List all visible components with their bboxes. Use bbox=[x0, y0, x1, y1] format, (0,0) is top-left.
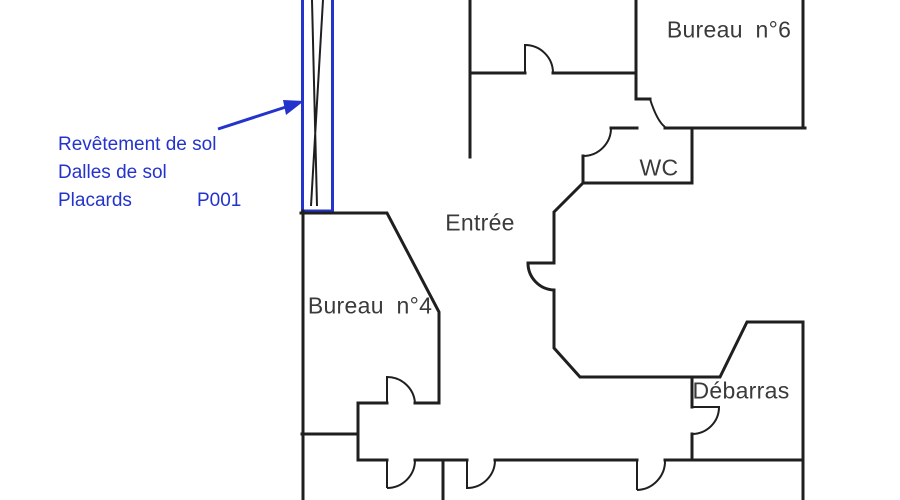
placard-highlight-strip bbox=[303, 0, 333, 211]
floor-plan: Bureau n°6 WC Entrée Bureau n°4 Débarras… bbox=[0, 0, 900, 500]
floor-plan-drawing bbox=[0, 0, 900, 500]
room-label-entree: Entrée bbox=[445, 210, 515, 237]
wall-bottom-left bbox=[358, 460, 467, 500]
annotation-text: Revêtement de sol Dalles de sol Placards… bbox=[58, 131, 216, 215]
wall-vestibule bbox=[302, 403, 358, 460]
room-label-wc: WC bbox=[640, 155, 679, 182]
door-arc-bottom-right bbox=[637, 460, 665, 490]
room-label-debarras: Débarras bbox=[693, 378, 790, 405]
room-label-bureau4: Bureau n°4 bbox=[308, 293, 432, 320]
annotation-arrow-icon bbox=[218, 100, 304, 129]
room-label-bureau6: Bureau n°6 bbox=[667, 17, 791, 44]
wall-entree-right bbox=[528, 183, 803, 500]
wall-bureau6-left bbox=[636, 0, 650, 99]
door-arc-bureau6 bbox=[650, 99, 665, 127]
door-arc-vestibule bbox=[387, 460, 415, 488]
door-arc-bureau4 bbox=[387, 377, 415, 403]
placard-door-lines bbox=[311, 0, 323, 206]
door-arc-debarras bbox=[692, 407, 719, 434]
annotation-placards-label: Placards bbox=[58, 190, 132, 211]
annotation-line-2: Dalles de sol bbox=[58, 159, 216, 187]
annotation-code: P001 bbox=[197, 187, 241, 215]
door-arc-bottom-center bbox=[467, 460, 495, 488]
door-arc-wc bbox=[583, 128, 611, 156]
annotation-line-3: Placards P001 bbox=[58, 187, 216, 215]
door-arc-top bbox=[525, 45, 553, 73]
annotation-line-1: Revêtement de sol bbox=[58, 131, 216, 159]
walls bbox=[301, 0, 805, 500]
